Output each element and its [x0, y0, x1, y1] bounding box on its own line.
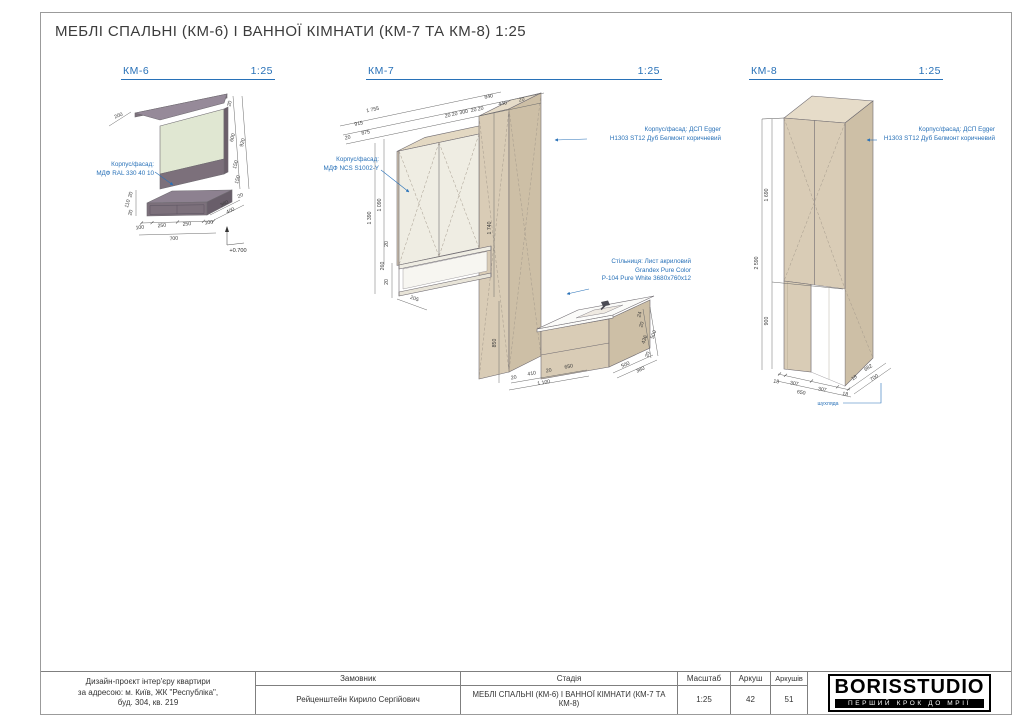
km7-material-left-label: Корпус/фасад: МДФ NCS S1002-Y — [317, 156, 379, 173]
dim-label: 20 — [237, 192, 245, 200]
km8-drawing — [784, 96, 873, 386]
sheets-total-cell: Аркушів 51 — [771, 672, 808, 714]
dim-label: 1 755 — [366, 106, 380, 115]
km8-left-leg — [784, 281, 811, 372]
dim-label: 650 — [796, 389, 806, 396]
dim-label: 1 740 — [487, 221, 493, 234]
scale-value: 1:25 — [678, 686, 730, 714]
project-info-cell: Дизайн-проєкт інтер'єру квартири за адре… — [41, 672, 256, 714]
dim-label: 410 — [527, 370, 537, 377]
sheet-value: 42 — [731, 686, 770, 714]
studio-logo: BORISSTUDIO ПЕРШИЙ КРОК ДО МРІЇ — [828, 674, 992, 712]
dim-label: 1 090 — [377, 198, 383, 211]
material-line: H1303 ST12 Дуб Белмонт коричневий — [877, 135, 995, 144]
km8-drawer-label: шухляда — [817, 401, 838, 407]
dim-label: 307 — [817, 386, 827, 393]
sheets-header: Аркушів — [771, 672, 807, 686]
km6-material-label: Корпус/фасад: МДФ RAL 330 40 10 — [96, 161, 154, 178]
dim-label: 205 — [409, 295, 419, 304]
dim-label: 900 — [764, 317, 770, 326]
project-line: буд. 304, кв. 219 — [78, 698, 218, 708]
material-line: Grandex Pure Color — [569, 267, 691, 276]
sheet-header: Аркуш — [731, 672, 770, 686]
customer-value: Рейценштейн Кирило Сергійович — [256, 686, 460, 714]
dim-label: 100 — [135, 225, 144, 232]
dim-label: 20 — [384, 279, 390, 285]
dim-label: 260 — [380, 262, 386, 271]
dim-label: 400 — [225, 206, 235, 215]
logo-wordmark: BORISSTUDIO — [835, 677, 985, 698]
sheets-value: 51 — [771, 686, 807, 714]
dim-label: 840 — [484, 93, 494, 101]
km7-material-right-label: Корпус/фасад: ДСП Egger H1303 ST12 Дуб Б… — [589, 126, 721, 143]
customer-cell: Замовник Рейценштейн Кирило Сергійович — [256, 672, 461, 714]
dim-label: 20 — [470, 107, 477, 114]
drawings-canvas: 200 20 600 920 150 150 380 400 20 20 110… — [41, 13, 1011, 663]
title-block: Дизайн-проєкт інтер'єру квартири за адре… — [41, 671, 1011, 714]
dim-label: 2 590 — [754, 256, 760, 269]
dim-label: 20 — [384, 241, 390, 247]
dim-label: 100 — [204, 220, 213, 227]
material-line: Корпус/фасад: ДСП Egger — [589, 126, 721, 135]
material-line: H1303 ST12 Дуб Белмонт коричневий — [589, 135, 721, 144]
sheet-frame: МЕБЛІ СПАЛЬНІ (КМ-6) І ВАННОЇ КІМНАТИ (К… — [40, 12, 1012, 715]
material-line: Корпус/фасад: ДСП Egger — [877, 126, 995, 135]
dim-label: 20 — [545, 368, 552, 375]
dim-label: 20 — [510, 375, 517, 382]
dim-label: 1 390 — [367, 211, 373, 224]
dim-label: 380 — [635, 366, 645, 375]
dim-label: 1 690 — [764, 188, 770, 201]
sheet-number-cell: Аркуш 42 — [731, 672, 771, 714]
dim-label: 150 — [232, 160, 240, 170]
dim-label: 875 — [361, 129, 371, 137]
dim-label: 700 — [169, 236, 178, 243]
dim-label: 18 — [773, 379, 780, 386]
drawing-sheet-page: МЕБЛІ СПАЛЬНІ (КМ-6) І ВАННОЇ КІМНАТИ (К… — [0, 0, 1024, 724]
stage-cell: Стадія МЕБЛІ СПАЛЬНІ (КМ-6) І ВАННОЇ КІМ… — [461, 672, 678, 714]
dim-label: 20 — [344, 134, 351, 141]
dim-label: 700 — [869, 373, 880, 383]
dim-label: 250 — [182, 221, 191, 228]
dim-label: 20 — [127, 191, 134, 198]
logo-tagline: ПЕРШИЙ КРОК ДО МРІЇ — [835, 699, 985, 708]
dim-label: 18 — [842, 391, 849, 398]
customer-header: Замовник — [256, 672, 460, 686]
level-mark: +0.700 — [229, 248, 246, 254]
km7-countertop-label: Стільниця: Лист акриловий Grandex Pure C… — [569, 258, 691, 284]
dim-label: 110 — [124, 199, 132, 209]
dim-label: 20 — [127, 209, 134, 216]
dim-label: 850 — [492, 339, 498, 348]
km6-drawing — [135, 94, 232, 216]
dim-label: 250 — [157, 223, 166, 230]
km8-material-label: Корпус/фасад: ДСП Egger H1303 ST12 Дуб Б… — [877, 126, 995, 143]
km8-open-void — [811, 285, 845, 387]
dim-label: 150 — [234, 175, 242, 185]
project-line: за адресою: м. Київ, ЖК "Республіка", — [78, 688, 218, 698]
stage-header: Стадія — [461, 672, 677, 686]
scale-cell: Масштаб 1:25 — [678, 672, 731, 714]
km6-panel-side — [224, 107, 228, 174]
material-line: Корпус/фасад: — [96, 161, 154, 170]
km8-cabinet-side — [845, 101, 873, 386]
project-line: Дизайн-проєкт інтер'єру квартири — [78, 677, 218, 687]
dim-label: 20 — [451, 111, 458, 118]
stage-value: МЕБЛІ СПАЛЬНІ (КМ-6) І ВАННОЇ КІМНАТИ (К… — [461, 686, 677, 714]
material-line: Корпус/фасад: — [317, 156, 379, 165]
scale-header: Масштаб — [678, 672, 730, 686]
level-arrow — [225, 226, 229, 232]
studio-logo-cell: BORISSTUDIO ПЕРШИЙ КРОК ДО МРІЇ — [808, 672, 1011, 714]
material-line: P-104 Pure White 3680x760x12 — [569, 275, 691, 284]
material-line: МДФ NCS S1002-Y — [317, 165, 379, 174]
dim-label: 600 — [229, 133, 237, 143]
dim-label: 200 — [113, 112, 123, 121]
dim-label: 500 — [620, 361, 630, 370]
material-line: МДФ RAL 330 40 10 — [96, 170, 154, 179]
dim-label: 1 100 — [537, 379, 551, 387]
material-line: Стільниця: Лист акриловий — [569, 258, 691, 267]
dim-label: 915 — [354, 120, 364, 128]
dim-label: 307 — [789, 380, 799, 387]
dim-label: 20 — [477, 105, 484, 112]
dim-label: 20 — [444, 112, 451, 119]
dim-label: 300 — [459, 109, 469, 117]
dim-label: 500 — [650, 330, 658, 340]
dim-label: 20 — [226, 100, 233, 107]
dim-label: 18 — [850, 374, 858, 382]
